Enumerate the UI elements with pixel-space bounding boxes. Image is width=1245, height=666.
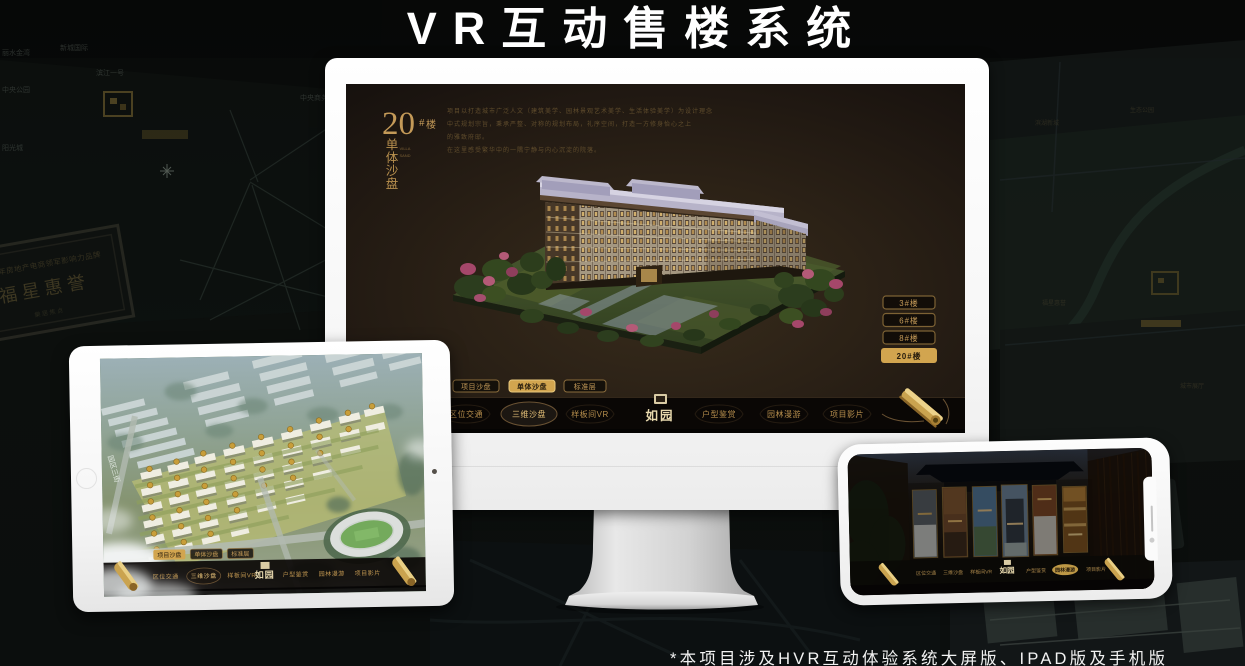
svg-text:20#楼: 20#楼 <box>897 351 922 361</box>
svg-text:项目影片: 项目影片 <box>1086 566 1106 573</box>
svg-text:#: # <box>419 117 425 129</box>
svg-text:项目影片: 项目影片 <box>830 409 864 419</box>
svg-text:滨湖新城: 滨湖新城 <box>1035 119 1059 127</box>
svg-text:项目沙盘: 项目沙盘 <box>461 382 491 391</box>
svg-text:20: 20 <box>382 106 415 142</box>
svg-text:标准层: 标准层 <box>574 382 597 391</box>
svg-text:中央公园: 中央公园 <box>2 85 30 94</box>
svg-text:三维沙盘: 三维沙盘 <box>943 569 963 576</box>
svg-text:体: 体 <box>386 151 399 165</box>
svg-text:户型鉴赏: 户型鉴赏 <box>702 409 736 419</box>
svg-text:沙: 沙 <box>386 164 399 178</box>
svg-text:的雅致府邸。: 的雅致府邸。 <box>447 133 489 141</box>
svg-text:阳光城: 阳光城 <box>2 143 23 152</box>
svg-text:楼: 楼 <box>426 118 436 131</box>
svg-text:园林漫游: 园林漫游 <box>767 409 801 419</box>
svg-text:中式规划宗旨，秉承严整、对称的规划布局，礼序空间，打造一方修: 中式规划宗旨，秉承严整、对称的规划布局，礼序空间，打造一方修身怡心之上 <box>447 120 692 128</box>
svg-text:盘: 盘 <box>386 176 399 191</box>
svg-text:城市展厅: 城市展厅 <box>1180 382 1204 390</box>
svg-text:如园: 如园 <box>255 569 275 580</box>
svg-text:单体沙盘: 单体沙盘 <box>517 382 547 391</box>
svg-text:三维沙盘: 三维沙盘 <box>512 409 546 419</box>
svg-text:项目以打造城市广泛人文（建筑美学、园林景观艺术美学、生活体验: 项目以打造城市广泛人文（建筑美学、园林景观艺术美学、生活体验美学）为设计理念 <box>447 107 713 115</box>
svg-text:单: 单 <box>386 138 399 152</box>
svg-text:3#楼: 3#楼 <box>899 298 918 308</box>
svg-text:SAND: SAND <box>399 153 410 158</box>
svg-text:8#楼: 8#楼 <box>899 333 918 343</box>
svg-text:滨江一号: 滨江一号 <box>96 68 124 77</box>
svg-text:样板间VR: 样板间VR <box>970 568 992 576</box>
svg-text:生态公园: 生态公园 <box>1130 106 1154 114</box>
svg-text:如园: 如园 <box>645 408 674 423</box>
svg-text:6#楼: 6#楼 <box>899 316 918 326</box>
svg-text:福星惠誉: 福星惠誉 <box>1042 299 1066 307</box>
svg-text:在这里感受繁华中的一隅宁静与内心沉淀的院落。: 在这里感受繁华中的一隅宁静与内心沉淀的院落。 <box>447 146 601 154</box>
svg-text:园林漫游: 园林漫游 <box>1055 566 1075 573</box>
svg-text:VILLA: VILLA <box>400 146 411 151</box>
svg-text:如园: 如园 <box>999 565 1015 575</box>
svg-text:户型鉴赏: 户型鉴赏 <box>1026 567 1046 574</box>
svg-text:区位交通: 区位交通 <box>449 409 483 419</box>
svg-text:样板间VR: 样板间VR <box>571 409 609 419</box>
svg-text:区位交通: 区位交通 <box>916 570 936 577</box>
